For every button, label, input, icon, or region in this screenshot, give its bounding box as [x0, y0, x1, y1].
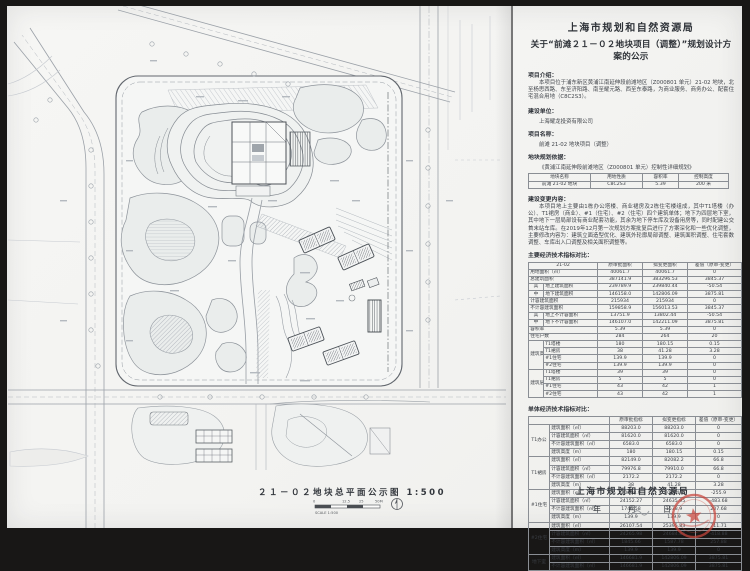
table-cell: 180 [598, 341, 643, 348]
table-cell: 215934 [643, 298, 688, 305]
table-cell: T1办公 [529, 424, 550, 457]
table-cell: 3845.37 [688, 305, 742, 312]
table-cell: T1裙房 [544, 376, 598, 383]
table-cell: 81620.0 [653, 433, 696, 441]
table-cell: 不计容建筑面积（㎡） [550, 473, 610, 481]
table-cell: 0.15 [696, 449, 742, 457]
table-cell: #2住宅 [544, 362, 598, 369]
table-cell: 25395.83 [653, 522, 696, 530]
table-cell: 计容建筑面积（㎡） [550, 530, 610, 538]
table-cell: 建筑层数 [529, 369, 544, 398]
scale-bar: 0 12.5 25 50M SCALE 1:500 [313, 500, 383, 516]
table-cell: 20 [688, 334, 742, 341]
table-cell: T1塔楼 [544, 369, 598, 376]
table-cell: 地上不计容面积 [544, 312, 598, 319]
table-cell: 88203.0 [653, 424, 696, 432]
table-cell: 146107.0 [598, 319, 643, 326]
table-cell: 13751.9 [598, 312, 643, 319]
main-table-label: 主要经济技术指标对比： [528, 250, 734, 259]
basis-value: 《黄浦江南延伸段前滩地区（Z000801 单元）控制性详细规划》 [528, 163, 734, 171]
table-cell: 711.71 [696, 522, 742, 530]
table-cell: C8C2S3 [591, 181, 643, 188]
plot-info-table: 地块名称用地性质容积率控制高度前滩 21-02 地块C8C2S35.39200 … [528, 173, 729, 189]
table-cell: 81620.0 [610, 433, 653, 441]
table-cell: 1 [688, 383, 742, 390]
table-cell: 中 [529, 291, 544, 298]
table-cell: 142806.09 [653, 563, 696, 571]
changes-label: 建设变更内容： [528, 194, 734, 203]
table-cell: 0 [688, 269, 742, 276]
table-cell: 79910.0 [653, 465, 696, 473]
table-header-cell: 差值（原审-变更） [688, 262, 742, 269]
fold-shadow [495, 6, 511, 528]
table-cell: 6583.0 [610, 441, 653, 449]
intro-label: 项目介绍： [528, 70, 734, 79]
table-cell: 200 米 [679, 181, 729, 188]
table-cell: 0 [688, 376, 742, 383]
table-cell: 26107.54 [610, 522, 653, 530]
table-cell: 3875.81 [696, 555, 742, 563]
scanned-notice-photo: { "header": { "title1": "上海市规划和自然资源局", "… [0, 0, 750, 536]
table-cell: 0 [696, 547, 742, 555]
table-cell: 0 [688, 326, 742, 333]
table-cell: 不计容建筑面积 [529, 305, 598, 312]
table-header-cell: 拟变更指标 [653, 416, 696, 424]
table-cell: 0 [688, 369, 742, 376]
table-cell: 0 [696, 514, 742, 522]
table-cell: 1 [688, 391, 742, 398]
table-cell: 156013.53 [643, 305, 688, 312]
table-cell: 住宅户数 [529, 334, 598, 341]
scale-tick-1: 12.5 [342, 500, 350, 504]
table-cell: 139.9 [653, 514, 696, 522]
table-cell: 5 [643, 376, 688, 383]
scale-tick-2: 25 [359, 500, 364, 504]
table-cell: 5.39 [598, 326, 643, 333]
table-cell: 13802.44 [643, 312, 688, 319]
table-cell: 38 [598, 348, 643, 355]
table-cell: #1住宅 [544, 383, 598, 390]
project-label: 项目名称： [528, 129, 734, 138]
notice-text-panel: 上海市规划和自然资源局 关于“前滩２１－０２地块项目（调整）”规划设计方案的公示… [513, 6, 742, 528]
table-cell: 其 [529, 284, 544, 291]
table-cell: 139.9 [643, 362, 688, 369]
date-year-char: 年 [593, 505, 602, 514]
table-cell: 383296.53 [643, 276, 688, 283]
intro-paragraph: 本项目位于浦东新区黄浦江南延伸段前滩地区（Z000801 单元）21-02 地块… [528, 80, 734, 102]
table-cell: 计容建筑面积 [529, 298, 598, 305]
table-cell: 264 [643, 334, 688, 341]
builder-label: 建设单位： [528, 106, 734, 115]
table-cell: 82082.2 [653, 457, 696, 465]
table-cell: 容积率 [529, 326, 598, 333]
table-cell: 180.15 [643, 341, 688, 348]
table-cell: 1587.78 [653, 538, 696, 546]
table-cell: 139.9 [610, 547, 653, 555]
table-header-cell: 差值（原审-变更） [696, 416, 742, 424]
table-cell: 不计容建筑面积（㎡） [550, 441, 610, 449]
site-plan-area: 0 12.5 25 50M SCALE 1:500 ２１－０２地块总平面公示图 … [7, 6, 512, 528]
table-header-cell: 用地性质 [591, 174, 643, 181]
table-cell: 5.39 [643, 326, 688, 333]
table-cell: 239840.44 [643, 284, 688, 291]
table-header-cell: 原审批面积 [598, 262, 643, 269]
table-cell: 0 [688, 355, 742, 362]
table-cell: 1845.66 [610, 538, 653, 546]
table-cell: 0 [696, 441, 742, 449]
table-cell: 41.28 [643, 348, 688, 355]
table-cell: 地下不计容面积 [544, 319, 598, 326]
table-cell: 不计容建筑面积（㎡） [550, 563, 610, 571]
table-cell: 建筑面积（㎡） [550, 522, 610, 530]
table-cell: 40061.7 [643, 269, 688, 276]
table-cell: 88203.0 [610, 424, 653, 432]
table-cell: 建筑面积（㎡） [550, 424, 610, 432]
table-cell: 3.28 [688, 348, 742, 355]
table-header-cell: 地块名称 [529, 174, 591, 181]
table-cell: 用地面积（㎡） [529, 269, 598, 276]
table-cell: 146158.0 [598, 291, 643, 298]
table-cell: 5.39 [643, 181, 679, 188]
table-cell: 建筑面积（㎡） [550, 457, 610, 465]
table-cell: 总建筑面积 [529, 276, 598, 283]
table-cell: T1塔楼 [544, 341, 598, 348]
handwritten-mark [631, 506, 651, 518]
table-cell: 43 [598, 391, 643, 398]
table-cell: 79976.8 [610, 465, 653, 473]
table-header-cell: 控制高度 [679, 174, 729, 181]
table-cell: -50.54 [688, 284, 742, 291]
table-cell: 地下室 [529, 555, 550, 571]
table-cell: 66.8 [696, 465, 742, 473]
builder-value: 上海耀龙投资有限公司 [528, 117, 734, 125]
basis-label: 地块规划依据： [528, 152, 734, 161]
table-cell: -418.88 [696, 530, 742, 538]
table-cell: 139.9 [643, 355, 688, 362]
table-cell: 0 [688, 362, 742, 369]
table-cell: 139.9 [598, 362, 643, 369]
table-cell: 24684.86 [653, 530, 696, 538]
table-cell: 42 [643, 391, 688, 398]
tower-annex-hatched [290, 132, 310, 166]
table-cell: 215934 [598, 298, 643, 305]
table-cell: 3875.81 [696, 563, 742, 571]
table-header-cell [529, 416, 610, 424]
table-cell: 2172.2 [610, 473, 653, 481]
table-cell: 142211.09 [643, 319, 688, 326]
table-cell: 284 [598, 334, 643, 341]
table-cell: 0 [696, 433, 742, 441]
document-title: 上海市规划和自然资源局 [528, 19, 734, 34]
table-cell: #2住宅 [544, 391, 598, 398]
paper-sheet: 0 12.5 25 50M SCALE 1:500 ２１－０２地块总平面公示图 … [7, 6, 742, 528]
table-cell: 39 [598, 369, 643, 376]
south-context-blocks [132, 400, 430, 470]
table-cell: 计容建筑面积（㎡） [550, 465, 610, 473]
table-cell: 2172.2 [653, 473, 696, 481]
table-cell: 其 [529, 312, 544, 319]
table-cell: 计容建筑面积（㎡） [550, 433, 610, 441]
table-cell: 146681.9 [610, 563, 653, 571]
table-cell: 中 [529, 319, 544, 326]
table-cell: 146681.9 [610, 555, 653, 563]
table-header-cell: 21-02 [529, 262, 598, 269]
date-day-char: 日 [663, 505, 672, 514]
scale-label: SCALE 1:500 [315, 511, 339, 515]
table-cell: 43 [598, 383, 643, 390]
table-cell: 地上建筑面积 [544, 284, 598, 291]
table-cell: 5 [598, 376, 643, 383]
table-cell: 前滩 21-02 地块 [529, 181, 591, 188]
scale-tick-3: 50M [375, 500, 383, 504]
table-header-cell: 容积率 [643, 174, 679, 181]
table-cell: 6583.0 [653, 441, 696, 449]
table-cell: 66.8 [696, 457, 742, 465]
issuing-authority: 上海市规划和自然资源局 [531, 484, 734, 497]
table-cell: 建筑高度 [529, 341, 544, 370]
table-cell: 0 [696, 424, 742, 432]
unit-table-label: 单体经济技术指标对比： [528, 404, 734, 413]
north-arrow-icon [392, 499, 403, 510]
table-cell: 地下建筑面积 [544, 291, 598, 298]
table-cell: 3875.81 [688, 319, 742, 326]
table-cell: 建筑高度（m） [550, 514, 610, 522]
table-cell: 42 [643, 383, 688, 390]
table-cell: #1住宅 [544, 355, 598, 362]
table-cell: 387141.9 [598, 276, 643, 283]
table-header-cell: 拟变更面积 [643, 262, 688, 269]
table-cell: 40061.7 [598, 269, 643, 276]
plan-caption: ２１－０２地块总平面公示图 1:500 [258, 486, 446, 498]
table-cell: 建筑面积（㎡） [550, 555, 610, 563]
ramp-hatched [368, 300, 381, 332]
table-cell: -50.54 [688, 312, 742, 319]
main-indicators-table: 21-02原审批面积拟变更面积差值（原审-变更）用地面积（㎡）40061.740… [528, 262, 742, 399]
table-cell: 159858.9 [598, 305, 643, 312]
table-cell: 0 [688, 298, 742, 305]
document-subtitle: 关于“前滩２１－０２地块项目（调整）”规划设计方案的公示 [528, 38, 734, 62]
table-cell: 24265.98 [610, 530, 653, 538]
table-cell: 3845.37 [688, 276, 742, 283]
table-cell: 257.88 [696, 538, 742, 546]
table-cell: 0.15 [688, 341, 742, 348]
scale-tick-0: 0 [313, 500, 316, 504]
site-plan-drawing-icon: 0 12.5 25 50M SCALE 1:500 [7, 6, 512, 528]
table-cell: 39 [643, 369, 688, 376]
table-cell: 建筑高度（m） [550, 547, 610, 555]
vertical-walkway-hatch [256, 290, 270, 378]
table-cell: 3875.81 [688, 291, 742, 298]
table-cell: 建筑高度（m） [550, 449, 610, 457]
table-cell: 82149.0 [610, 457, 653, 465]
changes-paragraph: 本项目地上主要由1栋办公塔楼、商业裙房及2栋住宅楼组成，其中T1塔楼（办公）、T… [528, 204, 734, 247]
table-cell: T1裙房 [544, 348, 598, 355]
table-cell: 142806.09 [643, 291, 688, 298]
table-cell: 180.15 [653, 449, 696, 457]
table-cell: #2住宅 [529, 522, 550, 555]
table-cell: 180 [610, 449, 653, 457]
table-cell: 142806.09 [653, 555, 696, 563]
table-cell: 139.9 [653, 547, 696, 555]
table-cell: 139.9 [598, 355, 643, 362]
project-value: 前滩 21-02 地块项目（调整） [528, 140, 734, 148]
table-header-cell: 原审批指标 [610, 416, 653, 424]
table-cell: 239789.9 [598, 284, 643, 291]
table-cell: 不计容建筑面积（㎡） [550, 538, 610, 546]
table-cell: 0 [696, 473, 742, 481]
